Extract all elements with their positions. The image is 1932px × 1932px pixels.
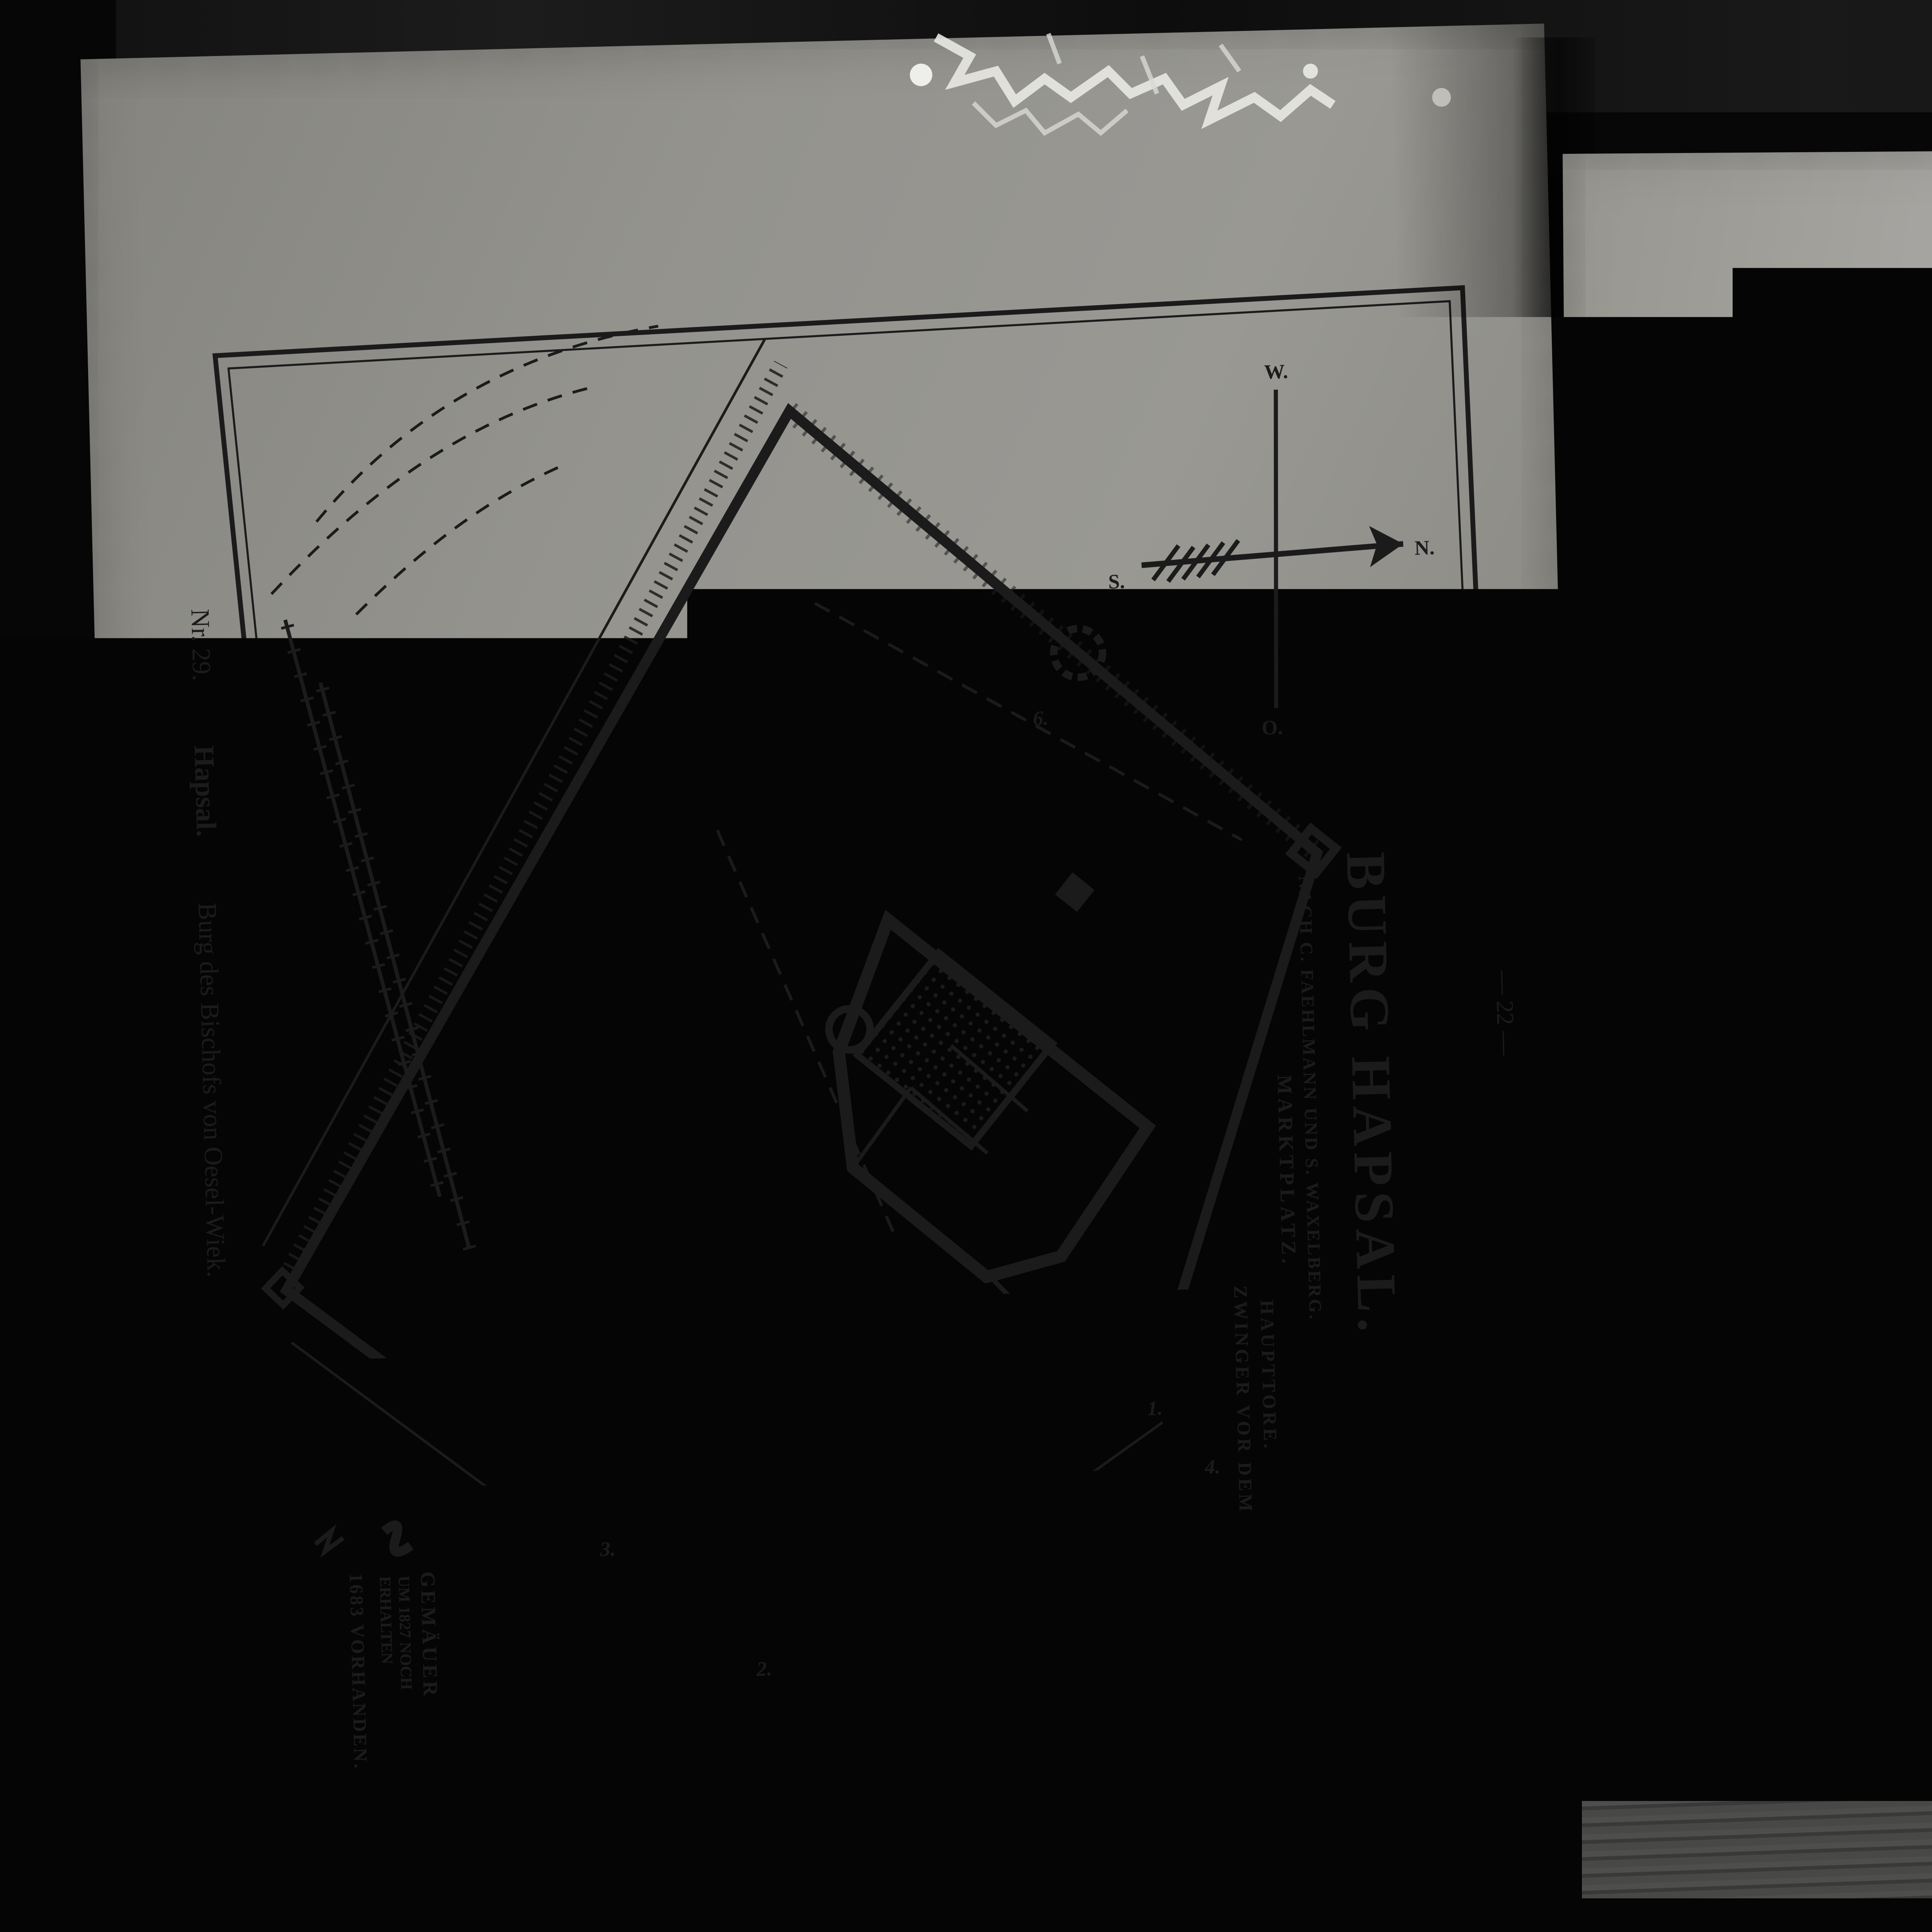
street-koenigs-1: KÖNIGS (1849, 859, 1865, 949)
moat-line-left-1 (241, 338, 787, 1246)
label-erdwall-bottom: ERDWALL (684, 1425, 789, 1520)
gate-karls-2: ODER (1891, 1387, 1903, 1420)
label-wall: WALL. (882, 752, 946, 803)
film-cracks (0, 0, 1932, 206)
book-fore-edge (1582, 1801, 1932, 1898)
bastion-luna-1: LUNA (1925, 1518, 1932, 1573)
hapsal-scale: 10 20 30 40 50 10 20 30 40 50 FADEN. MET… (264, 616, 471, 1259)
caption-name: Hapsal. (189, 745, 222, 837)
negative-frame: Nr. 29. Hapsal. Burg des Bischofs von Oe… (0, 0, 1932, 1932)
compass-o: O. (1261, 716, 1283, 739)
label-zwinger-2: HAUPTTORE. (1257, 1300, 1281, 1451)
label-nach-pernau: NACH PERNAU. (310, 361, 436, 461)
signature-loewis: K. Löwis (1888, 1585, 1903, 1632)
gate-house (1162, 1414, 1187, 1435)
pernau-scale: 0 10 20 30 40 REINLÄNDISCHE RUTEN (1861, 876, 1932, 1087)
hapsal-map: Nr. 29. Hapsal. Burg des Bischofs von Oe… (80, 24, 1589, 1916)
crack-line (936, 37, 1333, 120)
compass-cross-line (1268, 390, 1283, 708)
plan-number: 6. (1033, 707, 1049, 730)
label-sakristei: SAKRISTEI. (780, 1109, 840, 1243)
scale-label: REINLÄNDISCHE RUTEN (1920, 880, 1932, 1087)
crack-spot (910, 64, 932, 86)
gate-revaler-3: KARL-GUSTAV-TOR (1895, 601, 1908, 709)
legend-1b: UM 1827 NOCH (395, 1576, 415, 1690)
moat-hatch-left (268, 364, 803, 1268)
legend-2: 1683 VORHANDEN. (345, 1573, 371, 1770)
label-graben-right: GRABEN. (1220, 872, 1251, 992)
hapsal-legend: GEMÄUER UM 1827 NOCH ERHALTEN 1683 VORHA… (315, 1524, 444, 1771)
crack-spot (1303, 64, 1318, 79)
moat-hatch-bottom (303, 1354, 772, 1728)
legend-1c: ERHALTEN (376, 1576, 396, 1665)
gate-revaler-1: REVALER (1868, 609, 1881, 663)
plan-number: 3. (599, 1537, 616, 1561)
label-erdwall-left: ERDWALL (645, 957, 714, 1100)
label-glockenturm: ALTER GLOCKENTURM. (749, 1207, 848, 1466)
photo-canvas: Nr. 29. Hapsal. Burg des Bischofs von Oe… (0, 0, 1932, 1932)
street-koenigs-2: STRASSE (1855, 953, 1872, 1055)
gate-karls-1: RIGASCHES (1878, 1376, 1890, 1442)
compass-w: W. (1264, 360, 1288, 383)
map-title-hapsal: BURG HAPSAL. (1335, 851, 1409, 1338)
label-zwinger-1: ZWINGER VOR DEM (1230, 1286, 1256, 1515)
soll-bastion-outline (1860, 376, 1932, 639)
scale-bar (1878, 876, 1911, 1046)
ruler-numbers-1: 10 20 30 40 50 (265, 670, 299, 749)
roads-dashed (265, 326, 665, 616)
street-akademie: AKADEMIE STRASSE (1906, 702, 1932, 731)
moat-hatch-top (724, 344, 1326, 839)
street-revaler: REVALER STRASSE (1913, 561, 1932, 589)
bastion-luna-2: BASTION (1908, 1510, 1924, 1600)
ruler-numbers-2: 10 20 30 40 50 (349, 728, 383, 807)
signature-year: 1914. (1903, 1593, 1918, 1623)
caption-pernau: Nr. 48. Ordenskomturei und Stadtmauer vo… (1775, 729, 1804, 1222)
label-erdwall-top: ERDWALL. (1017, 773, 1179, 895)
caption-rest: Burg des Bischofs von Oesel-Wiek. (193, 902, 231, 1277)
page-pernau: — 34 — Nr. 48. Ordenskomturei und Stadtm… (1563, 146, 1932, 1929)
legend-symbol-masonry (384, 1525, 411, 1552)
ruler-2 (320, 679, 469, 1252)
label-graben-top: GRABEN. (938, 602, 1079, 711)
gate-revaler-2: ODER (1881, 616, 1894, 649)
wachtturm-tower (1055, 872, 1094, 912)
crack-spot (1432, 88, 1451, 107)
gate-karls-3: KARLS-TOR (1904, 1379, 1917, 1446)
pernau-map: — 34 — Nr. 48. Ordenskomturei und Stadtm… (1563, 146, 1932, 1929)
label-gewoelbe-box: GEWÖLBE (692, 883, 789, 1031)
plan-number: 4. (1204, 1455, 1220, 1478)
label-marktplatz: MARKTPLATZ. (1273, 1075, 1300, 1267)
label-stadt-top: STADT HAPSAL. (912, 357, 1190, 422)
label-stadt-bottom: STADT HAPSAL (675, 1694, 927, 1732)
caption-nr: Nr. 29. (185, 609, 216, 681)
plan-number: 2. (756, 1657, 772, 1680)
compass-s: S. (1108, 570, 1125, 593)
label-graben-left: GRABEN. (548, 967, 614, 1099)
crack-line (973, 34, 1239, 133)
page-hapsal: Nr. 29. Hapsal. Burg des Bischofs von Oe… (80, 24, 1589, 1916)
legend-1a: GEMÄUER (416, 1571, 442, 1699)
plan-number: 1. (1147, 1397, 1163, 1420)
